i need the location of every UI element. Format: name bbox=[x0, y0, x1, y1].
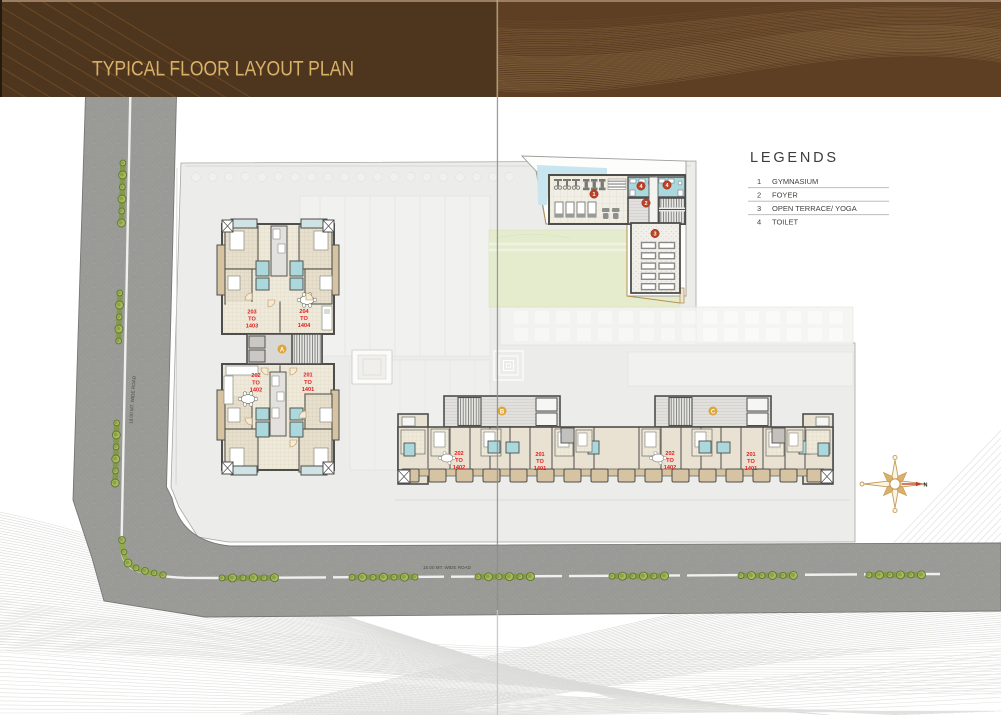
svg-text:A: A bbox=[280, 347, 285, 353]
svg-text:15.00 MT. WIDE ROAD: 15.00 MT. WIDE ROAD bbox=[423, 565, 472, 570]
svg-text:LEGENDS: LEGENDS bbox=[750, 150, 839, 166]
svg-text:1: 1 bbox=[757, 177, 761, 186]
svg-text:N: N bbox=[924, 483, 928, 489]
svg-text:GYMNASIUM: GYMNASIUM bbox=[772, 177, 818, 186]
svg-text:TYPICAL FLOOR LAYOUT PLAN: TYPICAL FLOOR LAYOUT PLAN bbox=[92, 58, 354, 81]
svg-text:3: 3 bbox=[757, 204, 761, 213]
svg-text:OPEN TERRACE/ YOGA: OPEN TERRACE/ YOGA bbox=[772, 204, 857, 213]
svg-text:2: 2 bbox=[757, 191, 761, 200]
svg-text:TOILET: TOILET bbox=[772, 218, 799, 227]
svg-text:4: 4 bbox=[757, 218, 761, 227]
svg-text:2: 2 bbox=[644, 201, 647, 207]
svg-text:C: C bbox=[711, 409, 716, 415]
svg-text:FOYER: FOYER bbox=[772, 191, 798, 200]
svg-text:B: B bbox=[500, 409, 505, 415]
svg-text:3: 3 bbox=[653, 232, 656, 238]
svg-text:1: 1 bbox=[592, 192, 595, 198]
